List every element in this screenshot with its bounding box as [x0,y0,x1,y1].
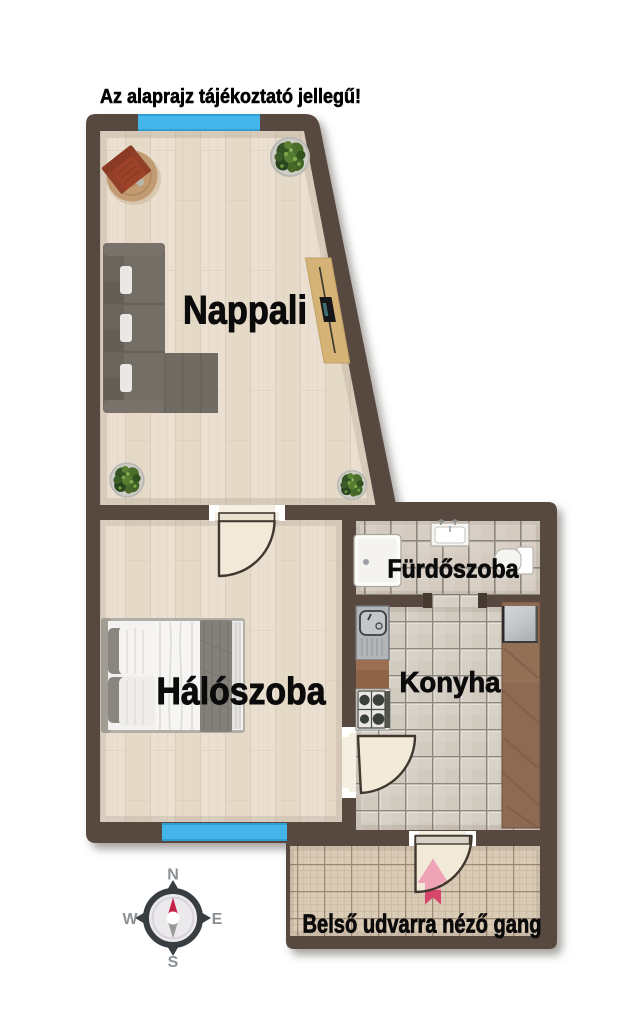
svg-text:N: N [167,867,179,884]
svg-text:W: W [122,911,138,928]
svg-text:S: S [168,954,179,971]
svg-text:Belső udvarra néző gang: Belső udvarra néző gang [303,909,542,939]
svg-text:Fürdőszoba: Fürdőszoba [388,554,519,584]
svg-text:Nappali: Nappali [183,289,307,333]
svg-text:Hálószoba: Hálószoba [157,671,327,713]
svg-text:Konyha: Konyha [400,667,502,699]
svg-text:Az alaprajz tájékoztató jelleg: Az alaprajz tájékoztató jellegű! [100,86,361,108]
svg-text:E: E [212,911,223,928]
